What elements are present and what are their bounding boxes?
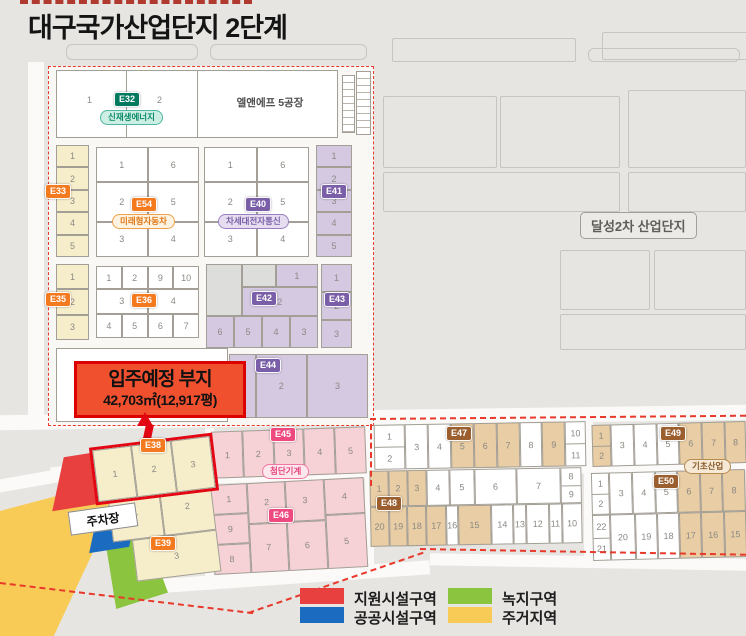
block-code-chip: E43 [324,292,350,307]
parcel-cell: 4 [56,212,89,234]
block-code-chip: E38 [140,438,166,453]
industry-label: 차세대전자통신 [218,214,289,229]
parcel-cell: 6 [474,468,517,505]
legend-swatch-green [448,588,492,604]
block-e41: 12345 [316,145,352,257]
block-code-chip: E47 [446,426,472,441]
callout-title: 입주예정 부지 [108,369,211,390]
legend-swatch-public [300,607,344,623]
parcel-cell: 4 [262,316,290,348]
block-code-chip: E50 [653,474,679,489]
city-block-outline [654,250,746,310]
parcel-cell: 1 [321,264,352,292]
page-title: 대구국가산업단지 2단계 [28,6,287,45]
road [28,62,44,420]
parcel-cell: 12 [591,473,611,516]
parcel-number: 2 [375,447,405,469]
industry-label: 첨단기계 [262,464,309,479]
parcel-cell: 6 [677,470,701,513]
parcel-number: 9 [562,486,581,503]
parcel-cell: 5 [325,513,368,569]
legend-label: 지원시설구역 [354,588,437,609]
parcel-number: 11 [566,444,585,465]
parcel-cell: 15 [457,505,491,545]
block-code-chip: E39 [150,536,176,551]
parcel-cell: 1 [96,266,122,289]
legend-label: 공공시설구역 [354,607,437,628]
block-code-chip: E32 [114,92,140,107]
parcel-cell: 1 [56,264,89,289]
parcel-cell: 3 [170,436,215,492]
parcel-cell: 9 [542,422,566,467]
small-parcel-strip [356,71,371,135]
parcel-cell: 1 [276,264,318,287]
parcel-cell: 10 [173,266,199,289]
parcel-cell: 6 [148,314,174,338]
block-e44: 123 [229,354,368,418]
parcel-cell: 3 [609,472,633,515]
factory-label: 엘앤에프 5공장 [207,95,333,110]
parcel-number: 2 [592,494,609,514]
parcel-cell [242,264,276,287]
parcel-cell: 1 [96,147,148,182]
parcel-cell: 3 [405,424,429,469]
neighbor-complex-label: 달성2차 산업단지 [580,212,697,239]
block-code-chip: E33 [45,184,71,199]
parcel-number: 1 [375,425,405,448]
parcel-cell: 2221 [592,515,611,561]
block-code-chip: E45 [270,427,296,442]
parcel-cell: 5 [56,235,89,257]
parcel-cell: 16 [446,506,458,546]
parcel-cell: 3 [321,320,352,348]
parcel-cell [206,264,242,316]
parcel-number: 2 [593,446,610,466]
road-outline [66,44,198,60]
parcel-cell: 4 [426,469,450,506]
parcel-cell: 19 [389,507,408,547]
block-code-chip: E35 [45,292,71,307]
parcel-cell: 3 [290,316,318,348]
block-e42: 1 2 6543 [206,264,318,348]
parcel-cell: 8 [722,469,746,512]
parcel-number: 1 [592,474,609,495]
parcel-number: 21 [594,538,611,560]
block-code-chip: E54 [131,197,157,212]
divider [197,71,198,137]
parcel-cell: 7 [173,314,199,338]
parcel-cell: 6 [148,147,200,182]
block-code-chip: E36 [131,293,157,308]
parcel-number: 1 [87,95,92,105]
city-block-outline [628,172,746,212]
city-block-outline [383,172,620,212]
city-block-outline [628,90,746,168]
parcel-cell: 89 [560,467,582,504]
callout-area: 42,703㎡(12,917평) [103,390,217,410]
parcel-cell: 3 [56,315,89,340]
legend-swatch-residential [448,607,492,623]
parcel-cell: 17 [426,506,447,546]
industry-label: 신재생에너지 [100,110,163,125]
city-block-outline [560,250,650,310]
parcel-cell: 6 [257,147,310,182]
parcel-cell: 10 [562,504,583,544]
small-parcel-strip [342,75,355,133]
parcel-cell: 1 [92,446,137,502]
parcel-cell: 3 [610,424,634,467]
parcel-cell: 7 [248,522,289,573]
parcel-cell: 12 [374,424,406,470]
parcel-cell: 4 [96,314,122,338]
parcel-cell: 5 [334,426,366,474]
parcel-cell: 6 [287,520,328,571]
parcel-cell: 20 [370,507,389,547]
parcel-cell: 9 [148,266,174,289]
block-e47: 1234567891011 [374,421,587,470]
block-code-chip: E40 [245,197,271,212]
parcel-number: 2 [157,95,162,105]
industry-label: 기초산업 [684,459,731,474]
parcel-cell: 5 [316,235,352,257]
parcel-cell: 1011 [565,421,587,466]
legend-swatch-support [300,588,344,604]
city-block-outline [560,314,746,350]
parcel-cell: 5 [122,314,148,338]
legend-label: 주거지역 [502,607,557,628]
road-outline [588,48,740,62]
parcel-cell: 14 [491,505,514,545]
callout-box: 입주예정 부지 42,703㎡(12,917평) [74,361,246,418]
parcel-cell: 5 [234,316,262,348]
block-code-chip: E41 [321,184,347,199]
city-block-outline [392,38,576,62]
parcel-cell: 4 [316,212,352,234]
block-code-chip: E49 [660,426,686,441]
parcel-number: 10 [566,422,585,444]
block-code-chip: E42 [251,291,277,306]
parcel-cell: 1 [204,147,257,182]
block-code-chip: E46 [268,508,294,523]
parcel-cell: 8 [725,421,746,464]
parcel-cell: 11 [548,504,562,544]
parcel-cell: 18 [407,506,426,546]
boundary-dashed [370,424,372,486]
industrial-complex-map: 1 2 엘앤에프 5공장 E32 신재생에너지 12345 E33 16 25 … [0,0,746,636]
parcel-number: 1 [593,426,610,447]
parcel-cell: 6 [473,423,497,468]
block-e32: 1 2 엘앤에프 5공장 [56,70,338,138]
city-block-outline [500,96,620,168]
parcel-number: 8 [561,468,580,486]
parcel-cell: 4 [323,477,365,515]
parcel-cell: 7 [516,468,561,505]
parcel-cell: 7 [496,422,520,467]
boundary-dashed [20,0,252,4]
parcel-cell: 3 [307,354,368,418]
parcel-cell: 6 [206,316,234,348]
parcel-cell: 12 [591,425,611,467]
parcel-cell: 8 [519,422,543,467]
parcel-cell: 1 [316,145,352,167]
parcel-cell: 4 [633,423,657,466]
legend-label: 녹지구역 [502,588,557,609]
block-code-chip: E44 [255,358,281,373]
parcel-cell: 13 [513,505,527,545]
block-e46: 198 27 36 45 [210,477,368,575]
block-code-chip: E48 [376,496,402,511]
parcel-cell: 3 [407,470,426,507]
parcel-cell: 1 [56,145,89,167]
block-e33: 12345 [56,145,89,257]
parcel-cell: 5 [449,469,475,506]
parcel-cell: 7 [700,470,724,513]
parcel-cell: 7 [702,422,726,465]
parcel-cell: 15 [724,511,746,557]
city-block-outline [383,96,497,168]
parcel-cell: 2 [122,266,148,289]
industry-label: 미래형자동차 [112,214,175,229]
parcel-cell: 16 [701,512,724,558]
road-outline [210,44,367,60]
parcel-cell: 12 [526,504,549,544]
parcel-number: 22 [593,516,610,539]
